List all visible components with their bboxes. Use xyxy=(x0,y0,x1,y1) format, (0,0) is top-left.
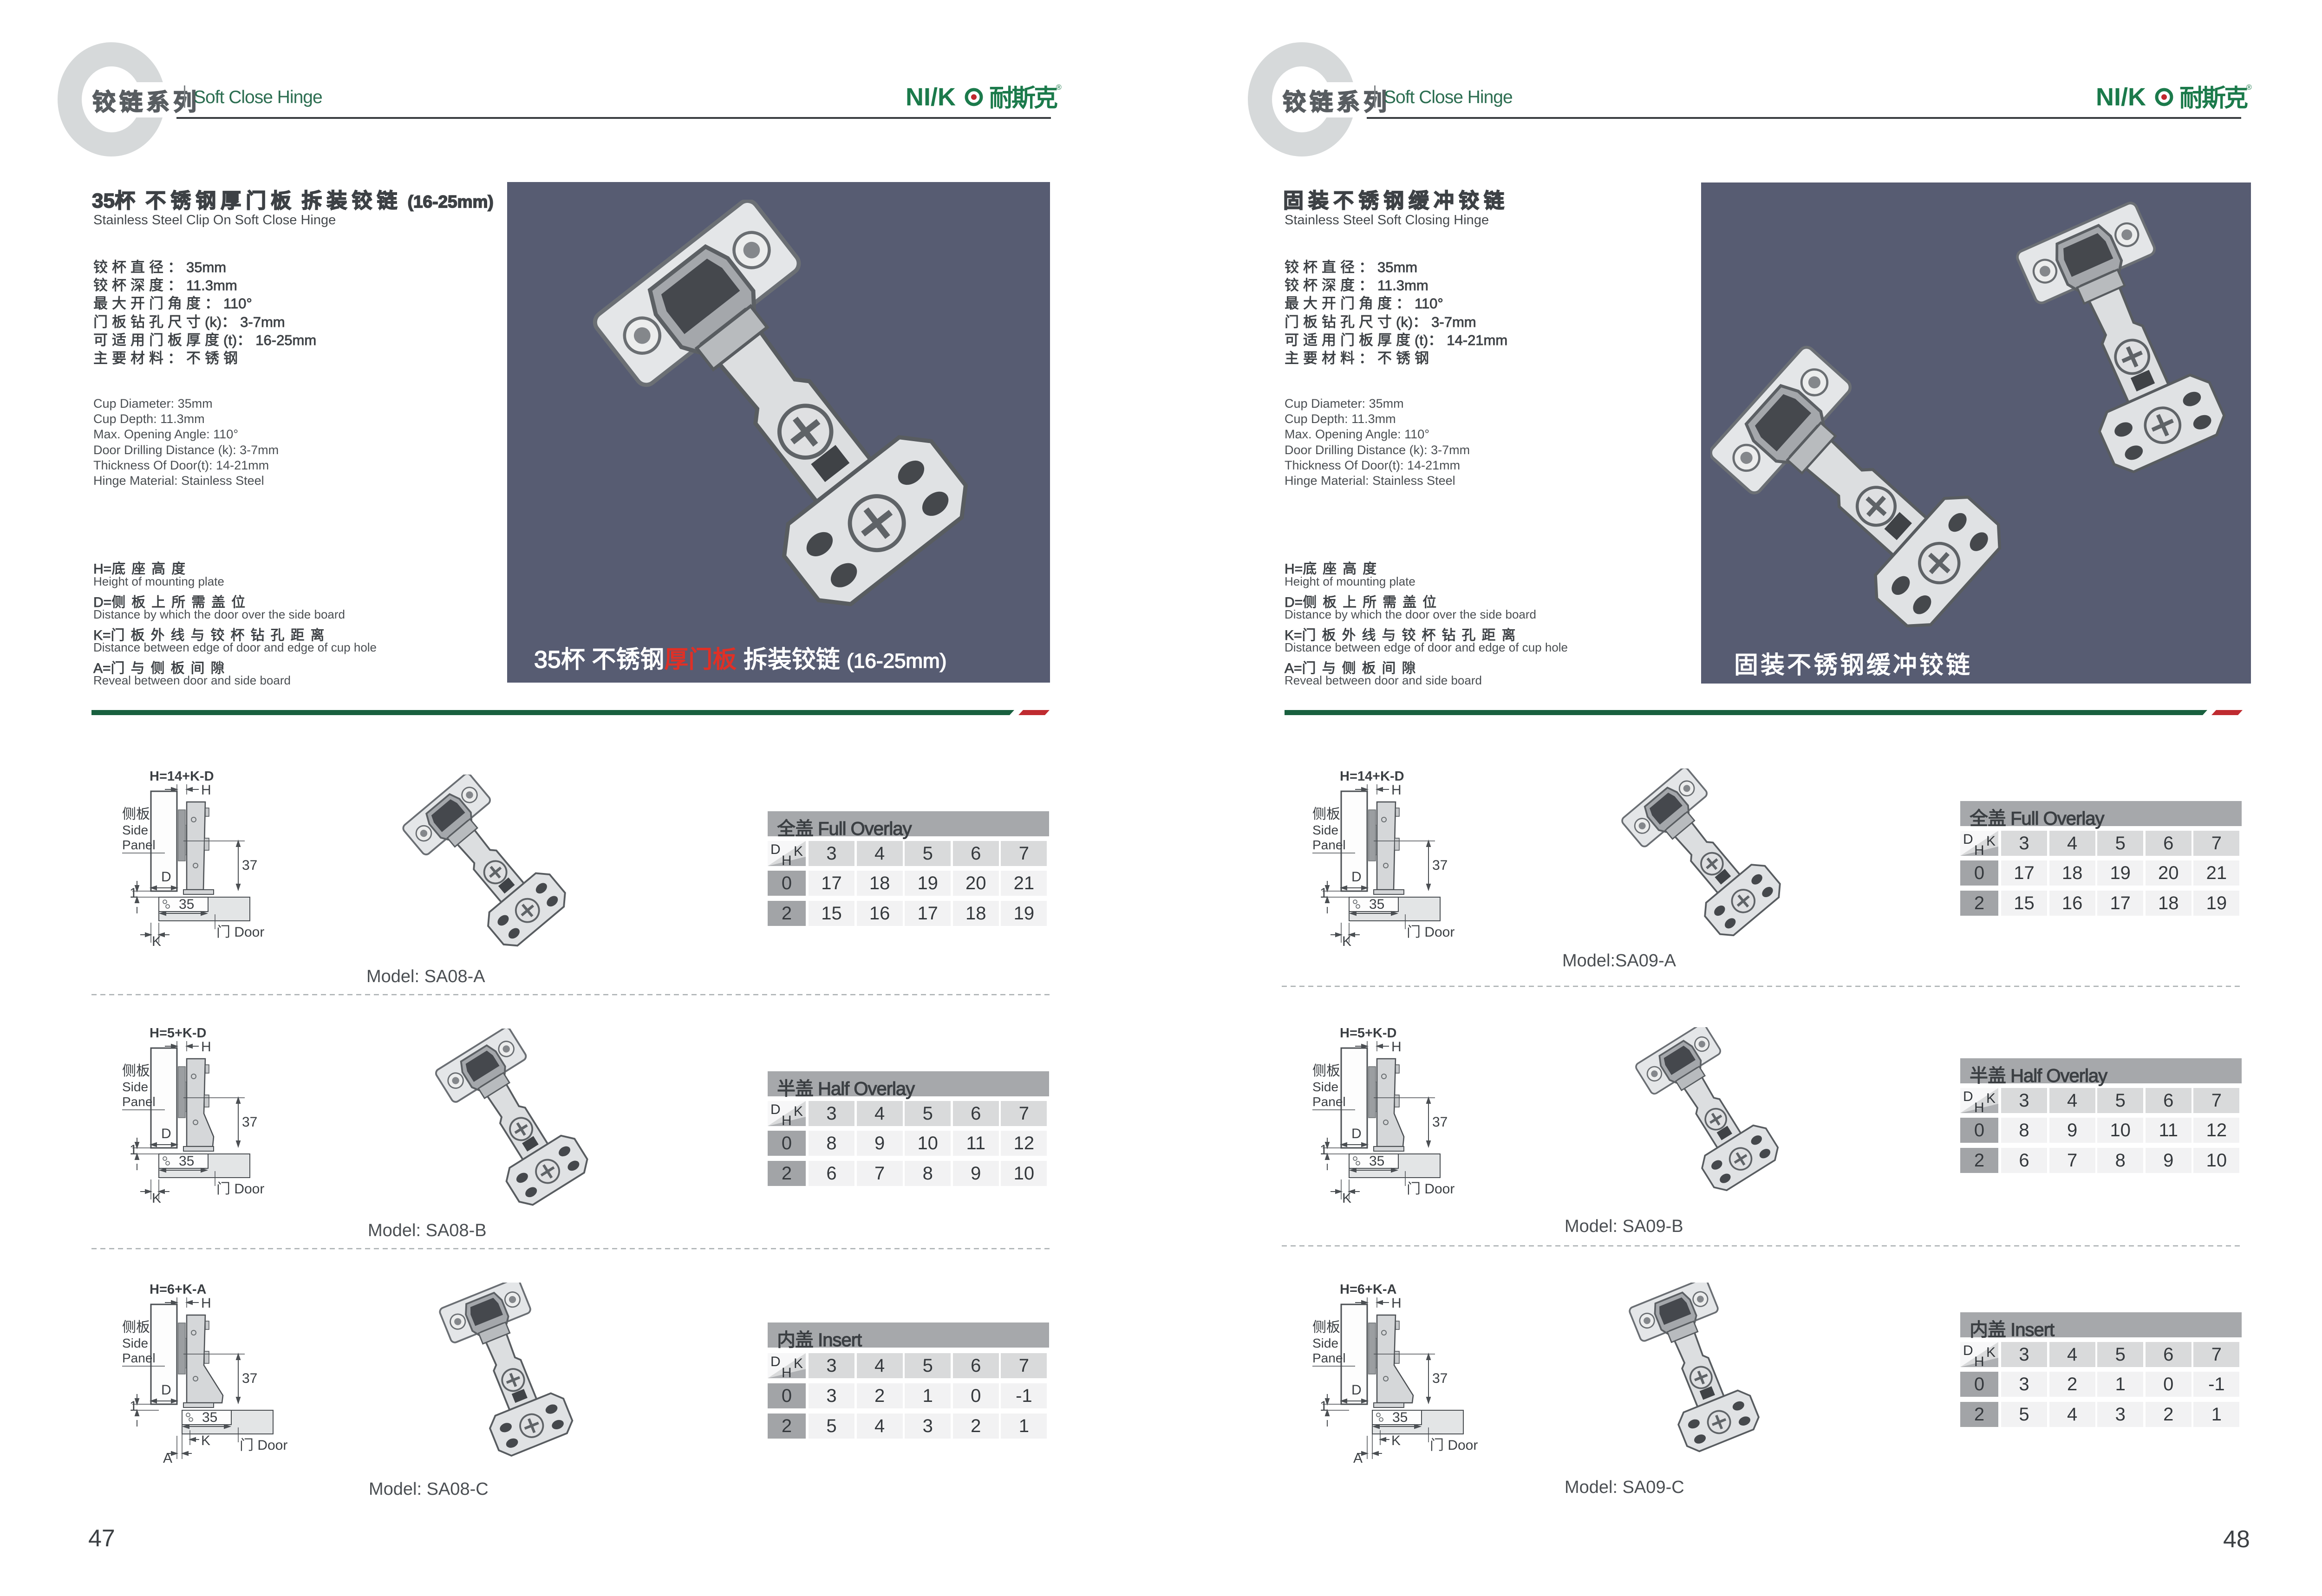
svg-text:门 Door: 门 Door xyxy=(240,1438,287,1453)
svg-text:35: 35 xyxy=(202,1410,217,1425)
svg-text:侧板: 侧板 xyxy=(1312,1063,1340,1079)
svg-text:K: K xyxy=(1986,1345,1996,1360)
svg-text:35: 35 xyxy=(179,1153,194,1169)
svg-text:H: H xyxy=(782,1113,792,1126)
svg-text:H: H xyxy=(201,1296,211,1311)
svg-text:H: H xyxy=(201,1039,211,1055)
svg-text:侧板: 侧板 xyxy=(122,807,150,822)
svg-text:H: H xyxy=(1391,1296,1402,1311)
svg-text:K: K xyxy=(794,1104,803,1119)
svg-text:37: 37 xyxy=(242,1114,257,1130)
svg-text:H: H xyxy=(1391,782,1402,798)
svg-text:37: 37 xyxy=(242,1371,257,1386)
svg-text:H: H xyxy=(782,1365,792,1378)
svg-text:NI/K: NI/K xyxy=(906,83,956,111)
svg-text:H: H xyxy=(782,853,792,866)
svg-text:H: H xyxy=(1974,1354,1984,1367)
svg-text:门 Door: 门 Door xyxy=(216,1181,264,1197)
svg-text:侧板: 侧板 xyxy=(1312,1320,1340,1335)
svg-text:37: 37 xyxy=(242,858,257,873)
svg-text:H: H xyxy=(201,782,211,798)
svg-text:D: D xyxy=(1963,832,1973,847)
svg-text:35: 35 xyxy=(179,897,194,912)
svg-text:K: K xyxy=(1986,834,1996,849)
svg-text:K: K xyxy=(794,1356,803,1371)
svg-text:K: K xyxy=(152,934,161,949)
svg-text:35: 35 xyxy=(1392,1410,1408,1425)
svg-text:D: D xyxy=(770,1102,781,1117)
svg-text:H: H xyxy=(1974,843,1984,856)
svg-text:35: 35 xyxy=(1369,1153,1384,1169)
svg-text:Panel: Panel xyxy=(1312,1351,1346,1365)
svg-text:37: 37 xyxy=(1432,1114,1448,1130)
svg-text:门 Door: 门 Door xyxy=(1407,925,1455,940)
svg-text:K: K xyxy=(201,1433,210,1448)
svg-text:D: D xyxy=(161,869,171,885)
svg-text:Panel: Panel xyxy=(122,1094,156,1109)
svg-text:耐斯克: 耐斯克 xyxy=(989,85,1057,112)
svg-text:D: D xyxy=(1963,1343,1973,1358)
svg-text:门 Door: 门 Door xyxy=(1407,1181,1455,1197)
svg-text:H=14+K-D: H=14+K-D xyxy=(150,769,214,784)
svg-text:Side: Side xyxy=(122,1080,148,1094)
svg-text:D: D xyxy=(161,1126,171,1141)
svg-text:A: A xyxy=(163,1451,172,1466)
svg-text:H=5+K-D: H=5+K-D xyxy=(1340,1026,1397,1041)
svg-text:Panel: Panel xyxy=(1312,838,1346,852)
svg-text:K: K xyxy=(152,1191,161,1206)
svg-text:D: D xyxy=(1351,869,1362,885)
svg-text:D: D xyxy=(770,842,781,857)
svg-text:H=6+K-A: H=6+K-A xyxy=(150,1282,207,1297)
svg-text:D: D xyxy=(1351,1126,1362,1141)
svg-text:D: D xyxy=(1963,1089,1973,1104)
svg-text:K: K xyxy=(794,844,803,859)
svg-text:37: 37 xyxy=(1432,1371,1448,1386)
svg-text:Panel: Panel xyxy=(122,838,156,852)
svg-text:A: A xyxy=(1353,1451,1363,1466)
svg-text:侧板: 侧板 xyxy=(122,1063,150,1079)
svg-text:D: D xyxy=(1351,1382,1362,1398)
svg-text:K: K xyxy=(1342,1191,1351,1206)
svg-text:Side: Side xyxy=(1312,1336,1338,1350)
svg-text:NI/K: NI/K xyxy=(2096,83,2146,111)
svg-text:D: D xyxy=(770,1354,781,1369)
svg-text:K: K xyxy=(1986,1091,1996,1106)
svg-text:®: ® xyxy=(1056,84,1062,91)
svg-text:H: H xyxy=(1391,1039,1402,1055)
svg-text:侧板: 侧板 xyxy=(122,1320,150,1335)
svg-text:Panel: Panel xyxy=(1312,1094,1346,1109)
svg-text:门 Door: 门 Door xyxy=(1430,1438,1478,1453)
svg-text:H=6+K-A: H=6+K-A xyxy=(1340,1282,1397,1297)
svg-text:37: 37 xyxy=(1432,858,1448,873)
svg-text:35: 35 xyxy=(1369,897,1384,912)
svg-text:Side: Side xyxy=(122,1336,148,1350)
svg-text:Side: Side xyxy=(1312,823,1338,837)
svg-text:侧板: 侧板 xyxy=(1312,807,1340,822)
svg-text:K: K xyxy=(1391,1433,1401,1448)
svg-text:D: D xyxy=(161,1382,171,1398)
svg-text:Side: Side xyxy=(122,823,148,837)
svg-text:K: K xyxy=(1342,934,1351,949)
svg-text:®: ® xyxy=(2246,84,2252,91)
svg-text:H=5+K-D: H=5+K-D xyxy=(150,1026,207,1041)
svg-text:H: H xyxy=(1974,1100,1984,1113)
svg-text:门 Door: 门 Door xyxy=(216,925,264,940)
svg-text:H=14+K-D: H=14+K-D xyxy=(1340,769,1404,784)
svg-text:Side: Side xyxy=(1312,1080,1338,1094)
svg-text:耐斯克: 耐斯克 xyxy=(2179,85,2248,112)
svg-text:Panel: Panel xyxy=(122,1351,156,1365)
